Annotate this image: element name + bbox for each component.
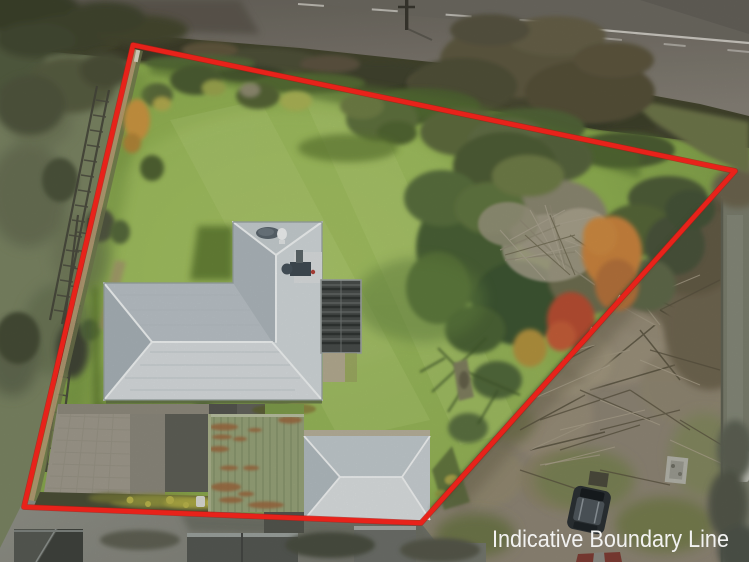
- svg-text:Indicative Boundary Line: Indicative Boundary Line: [492, 526, 729, 553]
